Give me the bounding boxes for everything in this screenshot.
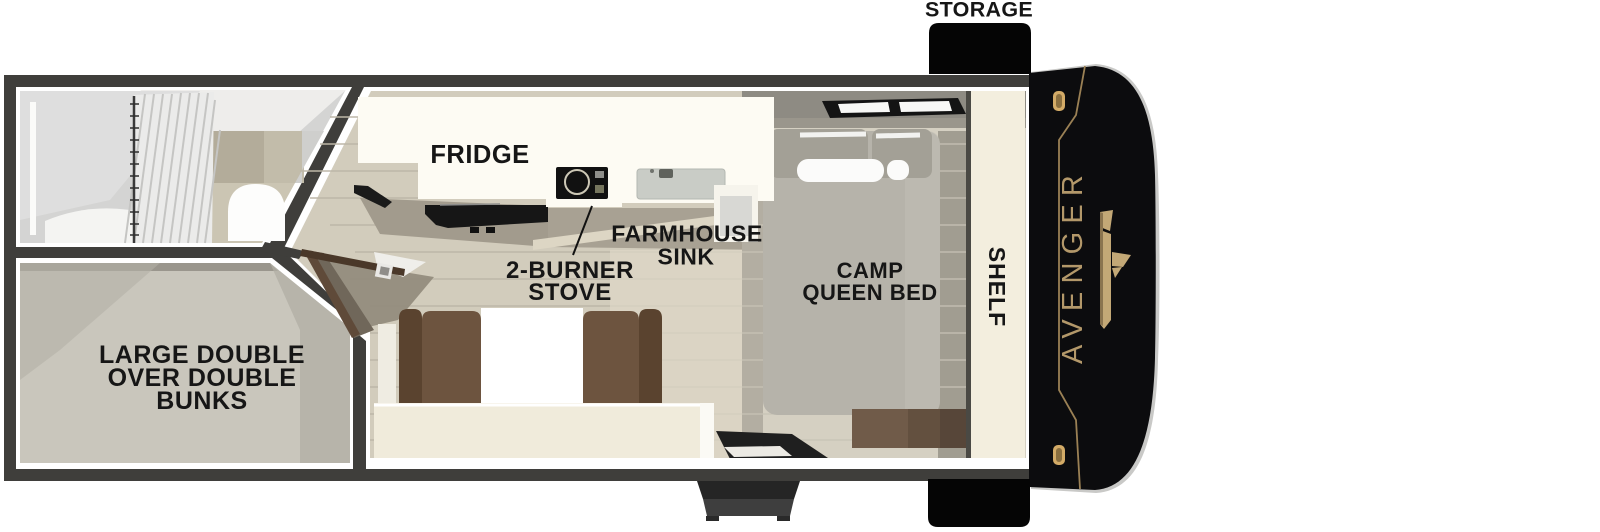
svg-text:FRIDGE: FRIDGE bbox=[430, 141, 529, 169]
svg-text:SHELF: SHELF bbox=[984, 247, 1010, 327]
svg-text:STOVE: STOVE bbox=[528, 279, 611, 306]
svg-text:STORAGE: STORAGE bbox=[925, 0, 1033, 22]
svg-text:SINK: SINK bbox=[658, 244, 715, 270]
svg-text:QUEEN BED: QUEEN BED bbox=[802, 280, 937, 305]
svg-text:BUNKS: BUNKS bbox=[156, 387, 247, 415]
svg-text:AVENGER: AVENGER bbox=[1057, 167, 1089, 364]
